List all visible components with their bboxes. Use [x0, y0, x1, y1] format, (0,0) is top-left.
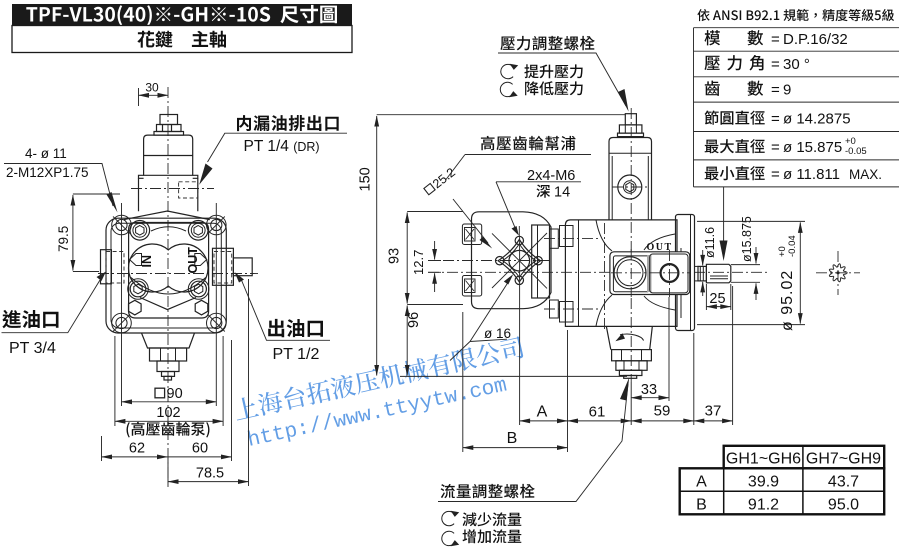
svg-text:ø 15.875: ø 15.875: [783, 139, 842, 156]
svg-text:=: =: [771, 111, 780, 128]
svg-text:-0.04: -0.04: [787, 235, 798, 257]
svg-text:12.7: 12.7: [411, 250, 426, 275]
svg-text:=: =: [771, 166, 780, 183]
svg-text:33: 33: [641, 382, 657, 398]
svg-text:OUT: OUT: [186, 247, 200, 274]
svg-text:30 °: 30 °: [783, 56, 810, 73]
svg-text:61: 61: [589, 404, 606, 421]
svg-text:39.9: 39.9: [748, 474, 779, 491]
svg-text:=: =: [771, 56, 780, 73]
svg-text:MAX.: MAX.: [849, 167, 882, 182]
svg-text:150: 150: [358, 167, 374, 191]
svg-text:http://www.ttyytw.com: http://www.ttyytw.com: [246, 374, 510, 452]
svg-text:GH1~GH6: GH1~GH6: [726, 451, 801, 468]
svg-text:78.5: 78.5: [196, 465, 224, 481]
svg-text:14: 14: [554, 185, 570, 201]
svg-text:ø 11.811: ø 11.811: [783, 166, 840, 183]
svg-text:B: B: [696, 497, 707, 514]
svg-text:102: 102: [156, 405, 180, 421]
svg-text:ø11.6: ø11.6: [703, 227, 717, 258]
svg-text:4- ø 11: 4- ø 11: [25, 146, 67, 161]
svg-text:96: 96: [406, 312, 422, 328]
svg-text:PT 1/4 (DR): PT 1/4 (DR): [244, 138, 320, 155]
svg-text:62: 62: [129, 441, 145, 457]
svg-text:ø 95.02: ø 95.02: [779, 270, 796, 331]
svg-text:PT 3/4: PT 3/4: [9, 340, 56, 357]
svg-text:D.P.16/32: D.P.16/32: [783, 31, 848, 48]
svg-text:93: 93: [387, 248, 403, 264]
svg-text:25: 25: [709, 291, 725, 307]
svg-text:=: =: [771, 31, 780, 48]
svg-text:ø15.875: ø15.875: [740, 216, 754, 262]
svg-text:GH7~GH9: GH7~GH9: [806, 451, 881, 468]
svg-text:91.2: 91.2: [748, 497, 779, 514]
svg-text:=: =: [771, 139, 780, 156]
svg-text:IN: IN: [140, 255, 154, 268]
svg-text:95.0: 95.0: [828, 497, 859, 514]
svg-text:ø 14.2875: ø 14.2875: [783, 111, 851, 128]
svg-text:30: 30: [145, 81, 159, 95]
svg-text:9: 9: [783, 82, 791, 99]
svg-text:79.5: 79.5: [56, 226, 71, 252]
svg-text:A: A: [537, 404, 548, 421]
svg-text:OUT: OUT: [647, 242, 673, 253]
svg-text:A: A: [696, 474, 707, 491]
svg-text:43.7: 43.7: [828, 474, 859, 491]
svg-text:PT 1/2: PT 1/2: [273, 346, 320, 363]
svg-text:2-M12XP1.75: 2-M12XP1.75: [6, 165, 89, 180]
svg-text:=: =: [771, 82, 780, 99]
svg-text:37: 37: [705, 403, 722, 420]
svg-text:59: 59: [654, 403, 671, 420]
svg-text:90: 90: [167, 386, 183, 402]
svg-text:B: B: [507, 430, 518, 447]
svg-text:-0.05: -0.05: [845, 146, 867, 157]
svg-text:60: 60: [192, 441, 208, 457]
